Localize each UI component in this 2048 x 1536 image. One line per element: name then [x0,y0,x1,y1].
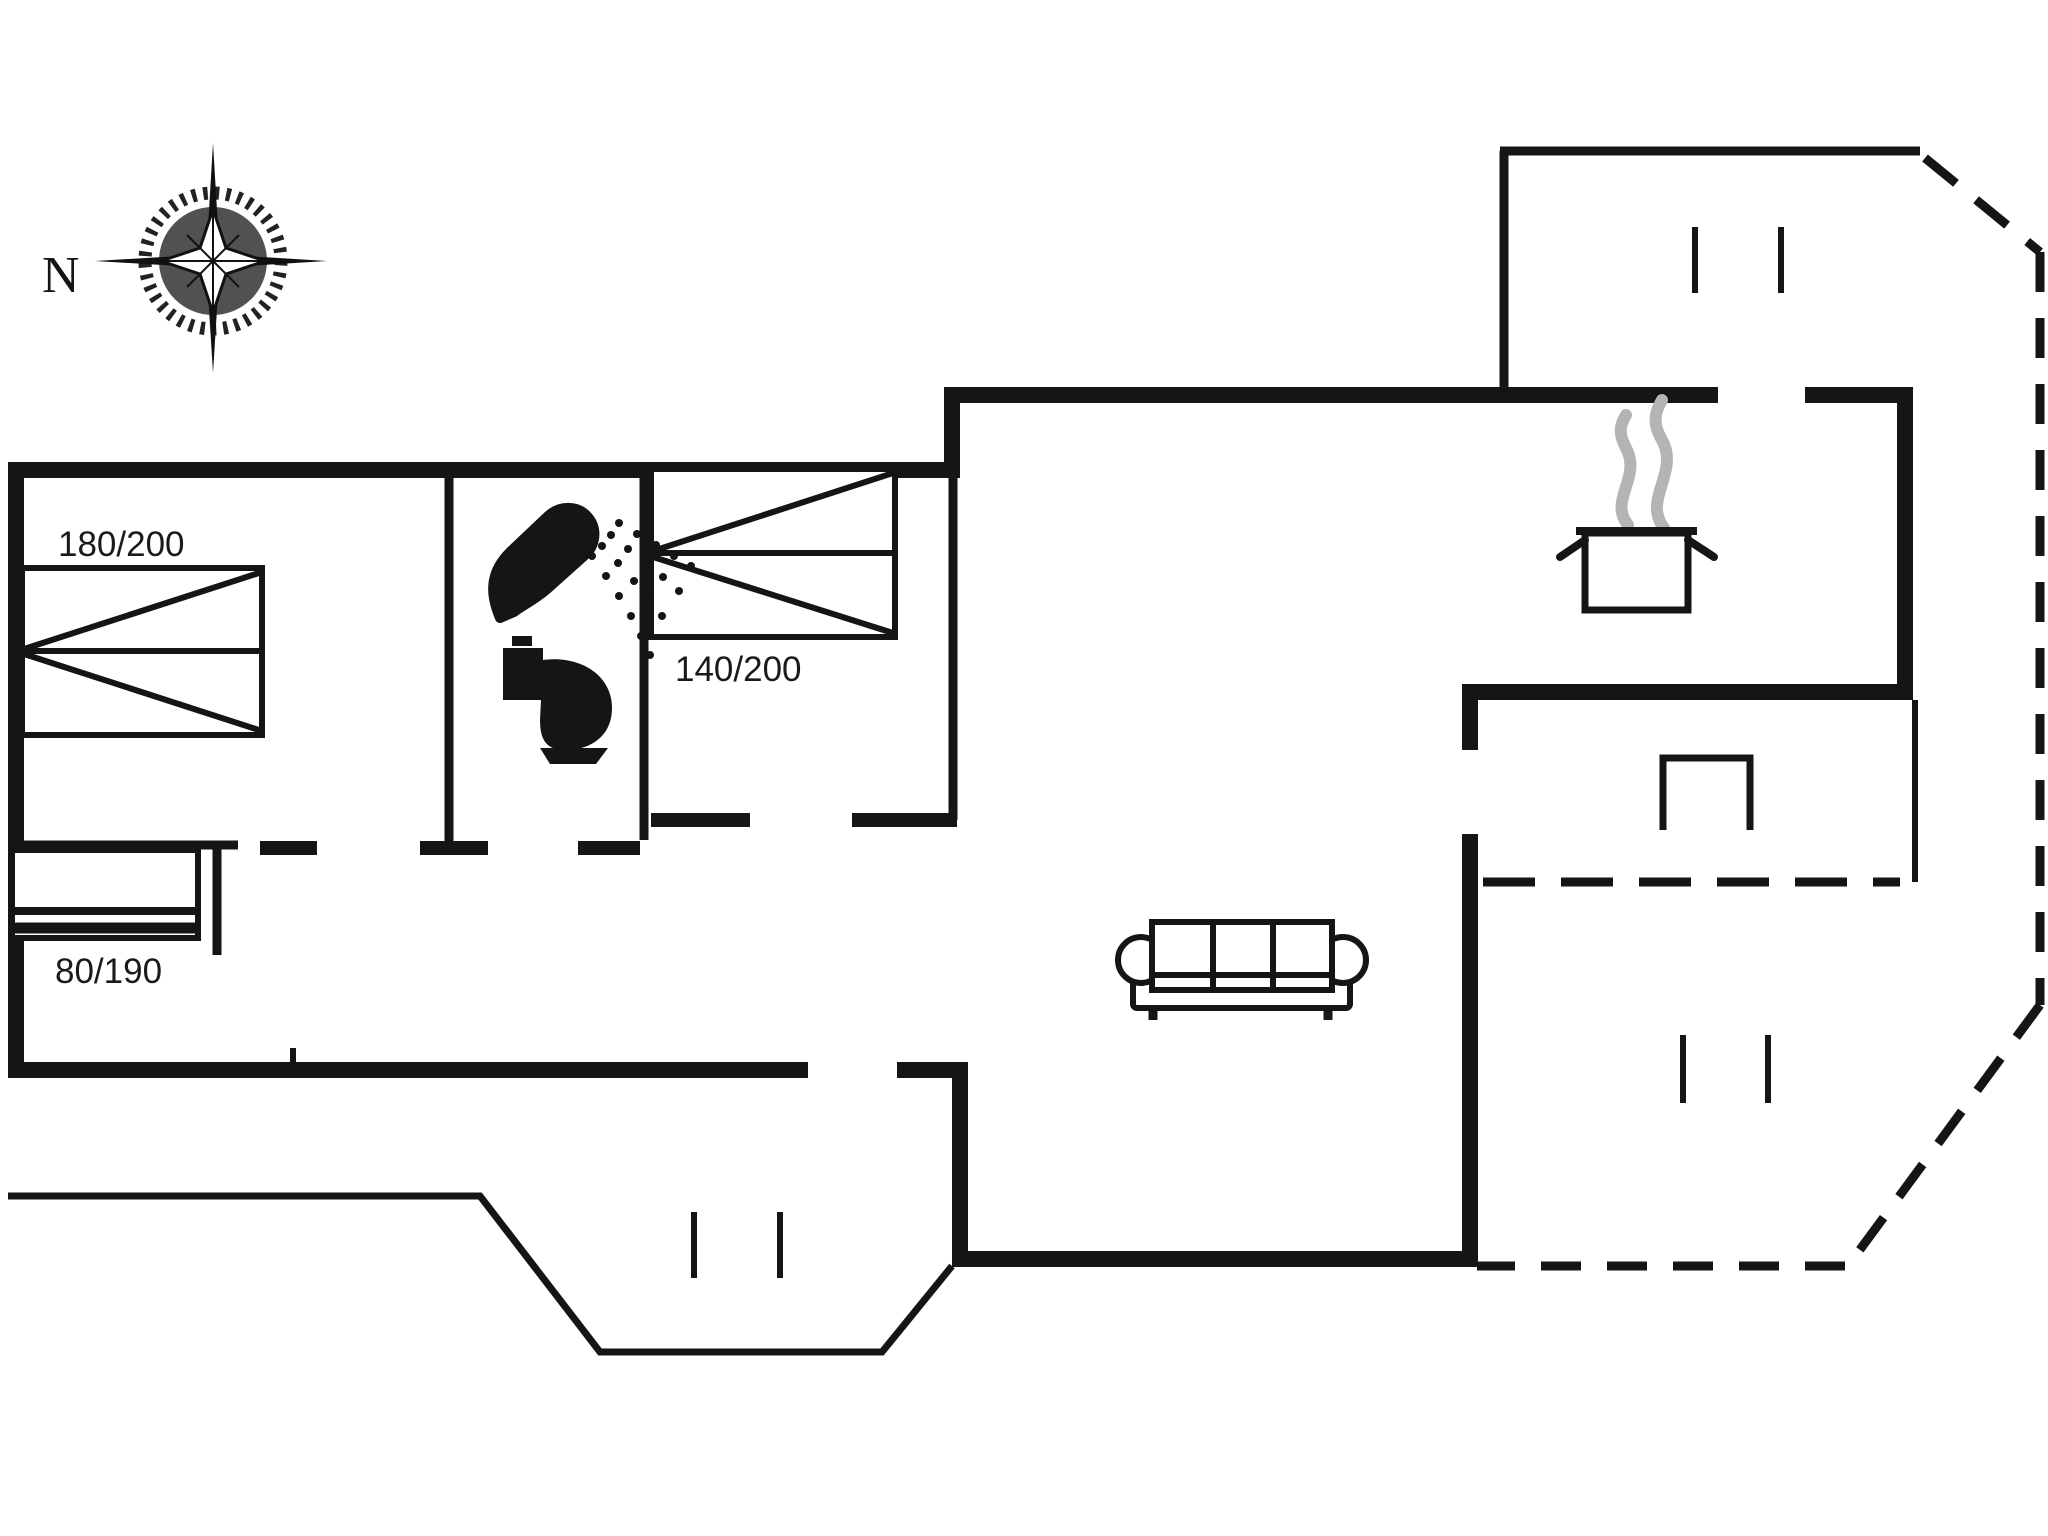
bed-size-label: 180/200 [58,525,185,564]
toilet-base [540,748,608,764]
floor-plan-drawing: 180/200 140/200 80/190 [0,0,2048,1536]
compass-rose-icon [95,143,327,373]
terrace-outline [8,1196,952,1352]
dashed-outline [1477,158,2040,1270]
sofa-back [1152,922,1332,990]
fireplace-outline [1663,758,1750,830]
terrace-edge [8,1196,952,1352]
sofa-icon [1118,922,1366,1020]
pot-handle [1688,540,1714,557]
steam-icon [1621,400,1667,528]
north-label: N [42,247,80,304]
double-bed-medium [651,469,895,637]
toilet-icon [503,636,612,764]
cooking-pot-icon [1560,531,1714,610]
bed-size-label: 140/200 [675,650,802,689]
steam-wisp [1656,400,1667,528]
single-bed [12,850,198,938]
dashed-diagonal-top-right [1925,158,2040,252]
pot-handle [1560,540,1585,557]
kitchen-block-walls [1500,151,1920,391]
toilet-button [512,636,532,646]
fireplace-icon [1663,758,1750,830]
window-marks [694,227,1781,1278]
toilet-tank [503,648,543,700]
steam-wisp [1621,415,1631,525]
toilet-bowl [540,659,612,750]
dashed-diagonal-bottom-right [1845,1005,2040,1270]
shower-head [493,508,594,618]
floor-plan: 180/200 140/200 80/190 [0,0,2048,1536]
bed-size-label: 80/190 [55,952,162,991]
pot-body [1585,533,1688,610]
double-bed-large [22,568,262,735]
